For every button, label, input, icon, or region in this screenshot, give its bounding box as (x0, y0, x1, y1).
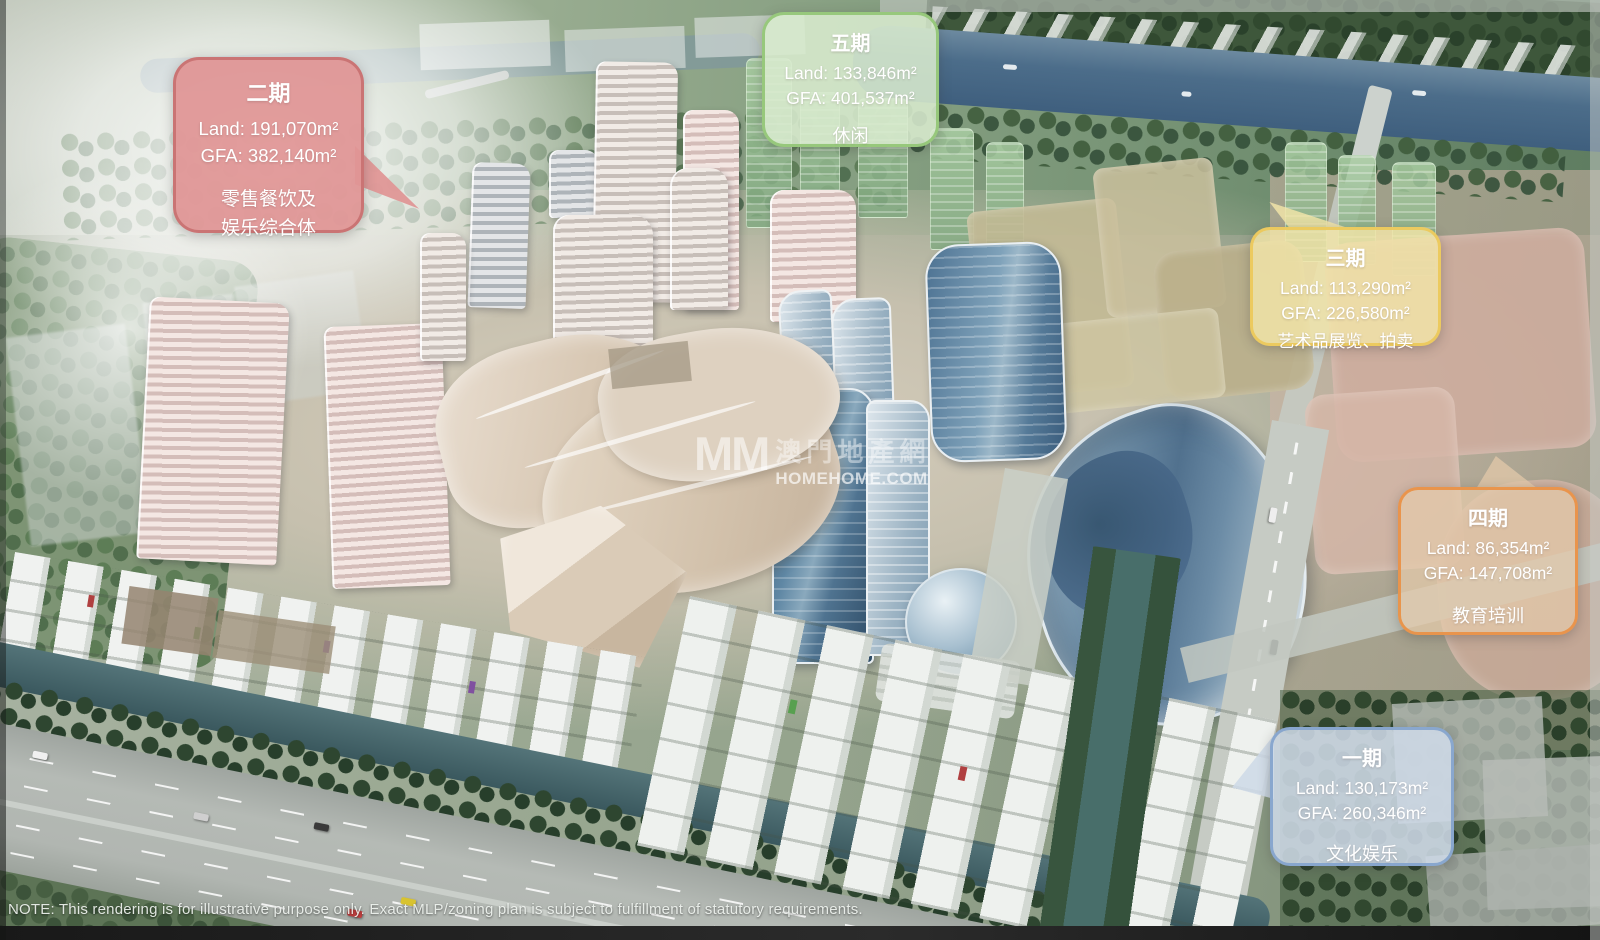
ghost-slab-gray (1425, 844, 1600, 936)
car (313, 822, 329, 832)
callout-phase2-gfa: GFA: 382,140m² (176, 143, 361, 170)
callout-phase4-use: 教育培训 (1401, 602, 1575, 628)
callout-phase2-use: 零售餐饮及 娱乐综合体 (176, 185, 361, 244)
boat (1181, 91, 1191, 97)
residential-tower (420, 233, 466, 361)
callout-phase2-title: 二期 (176, 76, 361, 108)
masterplan-rendering: MM 澳門地產網 HOMEHOME.COM 二期 Land: 191,070m²… (0, 0, 1600, 940)
watermark-domain: HOMEHOME.COM (775, 469, 930, 489)
top-edge-strip (880, 0, 1600, 12)
callout-phase1-gfa: GFA: 260,346m² (1273, 801, 1451, 826)
callout-phase5-title: 五期 (765, 27, 936, 56)
callout-phase3-use: 艺术品展览、拍卖 (1253, 327, 1438, 352)
villa-accent (958, 766, 968, 781)
callout-phase2: 二期 Land: 191,070m² GFA: 382,140m² 零售餐饮及 … (173, 57, 364, 233)
callout-phase3-land: Land: 113,290m² (1253, 276, 1438, 301)
watermark-logo: MM (694, 432, 768, 477)
callout-phase4: 四期 Land: 86,354m² GFA: 147,708m² 教育培训 (1398, 487, 1578, 635)
callout-phase5: 五期 Land: 133,846m² GFA: 401,537m² 休闲 (762, 12, 939, 147)
watermark-text: 澳門地產網 HOMEHOME.COM (775, 432, 930, 489)
callout-phase3-gfa: GFA: 226,580m² (1253, 301, 1438, 326)
villa-accent (788, 699, 798, 714)
ghost-block-beige (1038, 307, 1226, 415)
left-edge-shade (0, 0, 6, 940)
right-edge-strip (1590, 0, 1600, 940)
callout-phase1-land: Land: 130,173m² (1273, 776, 1451, 801)
bottom-dark-band (0, 926, 1600, 940)
lowrise-block (121, 586, 218, 656)
callout-phase5-use: 休闲 (765, 122, 936, 148)
villa-accent (468, 681, 476, 694)
callout-phase1: 一期 Land: 130,173m² GFA: 260,346m² 文化娱乐 (1270, 727, 1454, 866)
lowrise-block (608, 341, 692, 389)
callout-phase5-land: Land: 133,846m² (765, 61, 936, 86)
callout-phase1-title: 一期 (1273, 742, 1451, 771)
callout-phase3: 三期 Land: 113,290m² GFA: 226,580m² 艺术品展览、… (1250, 227, 1441, 346)
curved-tower (670, 168, 728, 310)
callout-phase4-title: 四期 (1401, 502, 1575, 531)
residential-tower (136, 297, 290, 566)
callout-phase4-gfa: GFA: 147,708m² (1401, 561, 1575, 586)
watermark: MM 澳門地產網 HOMEHOME.COM (694, 432, 930, 489)
callout-phase2-land: Land: 191,070m² (176, 116, 361, 143)
office-tower (467, 162, 530, 309)
residential-tower (323, 323, 450, 589)
callout-phase3-title: 三期 (1253, 242, 1438, 271)
car (1268, 507, 1277, 523)
boat (1412, 90, 1426, 96)
callout-phase5-gfa: GFA: 401,537m² (765, 86, 936, 111)
callout-phase1-use: 文化娱乐 (1273, 840, 1451, 866)
disclaimer-note: NOTE: This rendering is for illustrative… (8, 901, 863, 918)
villa-accent (87, 595, 95, 608)
boat (1003, 64, 1017, 70)
callout-phase4-land: Land: 86,354m² (1401, 536, 1575, 561)
watermark-site-name: 澳門地產網 (775, 432, 930, 469)
glass-tower-rounded (924, 241, 1068, 464)
office-tower (549, 150, 599, 218)
